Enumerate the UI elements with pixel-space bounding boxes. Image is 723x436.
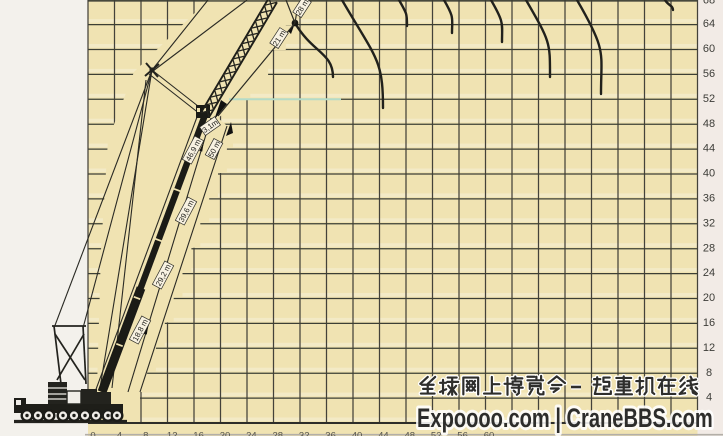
svg-text:12: 12 — [167, 431, 178, 436]
svg-text:44: 44 — [703, 143, 715, 155]
svg-text:16: 16 — [193, 431, 204, 436]
svg-text:4: 4 — [117, 431, 122, 436]
svg-text:0: 0 — [90, 431, 95, 436]
svg-text:28: 28 — [273, 431, 284, 436]
svg-text:48: 48 — [703, 118, 715, 130]
svg-text:32: 32 — [703, 217, 715, 229]
svg-text:16: 16 — [703, 317, 715, 329]
svg-text:44: 44 — [378, 431, 389, 436]
svg-text:68: 68 — [703, 0, 715, 7]
svg-text:36: 36 — [703, 193, 715, 205]
svg-text:64: 64 — [703, 18, 715, 30]
svg-text:56: 56 — [703, 68, 715, 80]
svg-text:28: 28 — [703, 242, 715, 254]
svg-text:8: 8 — [143, 431, 148, 436]
svg-text:40: 40 — [352, 431, 363, 436]
svg-text:20: 20 — [703, 292, 715, 304]
svg-text:Expoooo.com | CraneBBS.com: Expoooo.com | CraneBBS.com — [417, 405, 713, 434]
svg-text:40: 40 — [703, 168, 715, 180]
svg-text:8: 8 — [706, 367, 712, 379]
svg-text:20: 20 — [220, 431, 231, 436]
svg-text:48: 48 — [405, 431, 416, 436]
svg-text:52: 52 — [703, 93, 715, 105]
svg-text:24: 24 — [703, 267, 715, 279]
svg-text:4: 4 — [706, 392, 712, 404]
svg-text:32: 32 — [299, 431, 310, 436]
svg-text:36: 36 — [325, 431, 336, 436]
svg-text:12: 12 — [703, 342, 715, 354]
svg-text:60: 60 — [703, 43, 715, 55]
svg-text:24: 24 — [246, 431, 257, 436]
